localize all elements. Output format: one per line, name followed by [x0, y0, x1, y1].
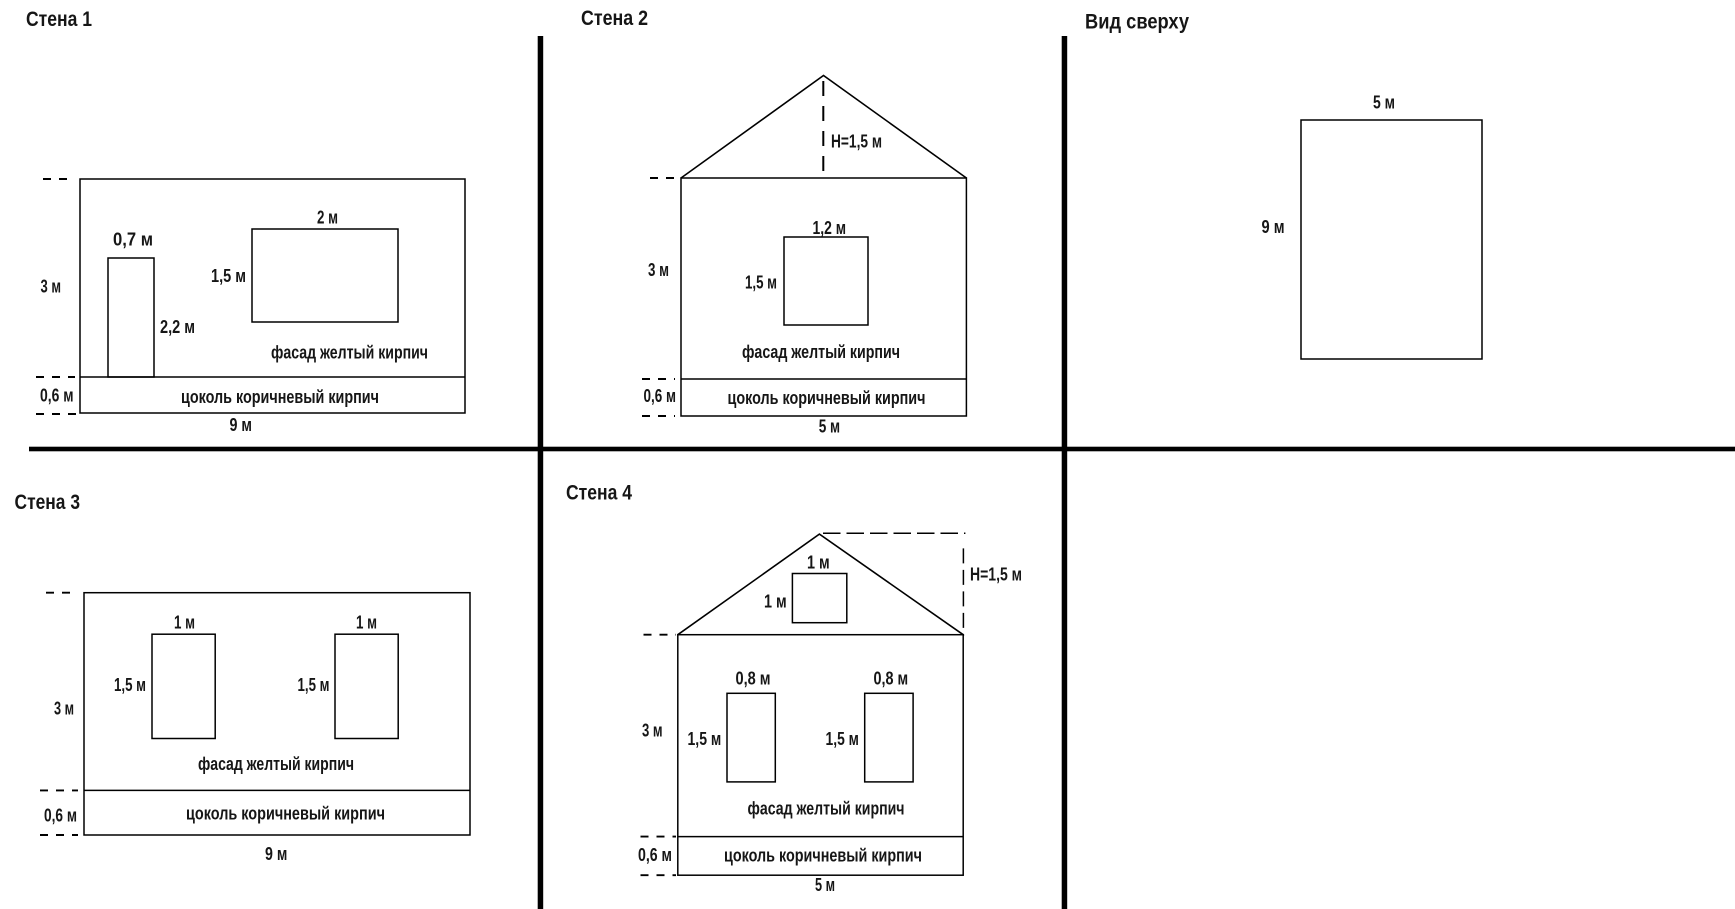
- svg-text:5 м: 5 м: [815, 875, 835, 895]
- svg-text:3 м: 3 м: [648, 260, 669, 280]
- svg-text:цоколь коричневый кирпич: цоколь коричневый кирпич: [186, 804, 385, 824]
- svg-text:Вид сверху: Вид сверху: [1085, 10, 1189, 34]
- svg-text:Стена 2: Стена 2: [581, 6, 648, 30]
- svg-text:2 м: 2 м: [317, 208, 338, 228]
- svg-text:3 м: 3 м: [642, 721, 663, 741]
- svg-text:0,6 м: 0,6 м: [40, 386, 74, 406]
- svg-text:1 м: 1 м: [764, 592, 787, 612]
- svg-text:цоколь коричневый кирпич: цоколь коричневый кирпич: [728, 388, 926, 408]
- svg-text:3 м: 3 м: [41, 277, 62, 297]
- svg-text:Стена 1: Стена 1: [26, 7, 92, 31]
- svg-text:Стена 3: Стена 3: [15, 490, 81, 514]
- svg-text:0,6 м: 0,6 м: [638, 845, 672, 865]
- svg-text:1,5 м: 1,5 м: [211, 266, 246, 286]
- svg-text:2,2 м: 2,2 м: [160, 317, 195, 337]
- svg-text:1,5 м: 1,5 м: [745, 273, 777, 293]
- svg-text:1,2 м: 1,2 м: [813, 218, 847, 238]
- svg-text:9 м: 9 м: [265, 844, 287, 864]
- svg-text:5 м: 5 м: [1373, 93, 1395, 113]
- svg-text:1,5 м: 1,5 м: [826, 729, 859, 749]
- svg-text:цоколь коричневый кирпич: цоколь коричневый кирпич: [181, 387, 379, 407]
- svg-text:фасад желтый кирпич: фасад желтый кирпич: [742, 342, 900, 362]
- svg-text:0,6 м: 0,6 м: [44, 806, 77, 826]
- svg-text:фасад желтый кирпич: фасад желтый кирпич: [748, 799, 905, 819]
- svg-text:Н=1,5 м: Н=1,5 м: [970, 565, 1022, 585]
- svg-text:0,8 м: 0,8 м: [874, 669, 909, 689]
- svg-text:9 м: 9 м: [1262, 217, 1285, 237]
- svg-text:5 м: 5 м: [819, 417, 840, 437]
- svg-text:Стена 4: Стена 4: [566, 481, 632, 505]
- svg-text:1 м: 1 м: [174, 613, 195, 633]
- svg-text:1,5 м: 1,5 м: [298, 675, 330, 695]
- svg-text:3 м: 3 м: [54, 699, 74, 719]
- svg-text:0,6 м: 0,6 м: [644, 386, 677, 406]
- svg-text:0,7 м: 0,7 м: [113, 230, 153, 250]
- svg-text:1 м: 1 м: [807, 553, 830, 573]
- svg-text:1,5 м: 1,5 м: [114, 675, 146, 695]
- svg-text:0,8 м: 0,8 м: [736, 669, 771, 689]
- svg-text:1 м: 1 м: [356, 613, 377, 633]
- svg-text:9 м: 9 м: [230, 415, 253, 435]
- svg-text:Н=1,5 м: Н=1,5 м: [831, 132, 882, 152]
- svg-text:фасад желтый кирпич: фасад желтый кирпич: [271, 343, 428, 363]
- svg-text:цоколь коричневый кирпич: цоколь коричневый кирпич: [724, 846, 922, 866]
- svg-text:1,5 м: 1,5 м: [688, 729, 722, 749]
- svg-text:фасад желтый кирпич: фасад желтый кирпич: [198, 754, 354, 774]
